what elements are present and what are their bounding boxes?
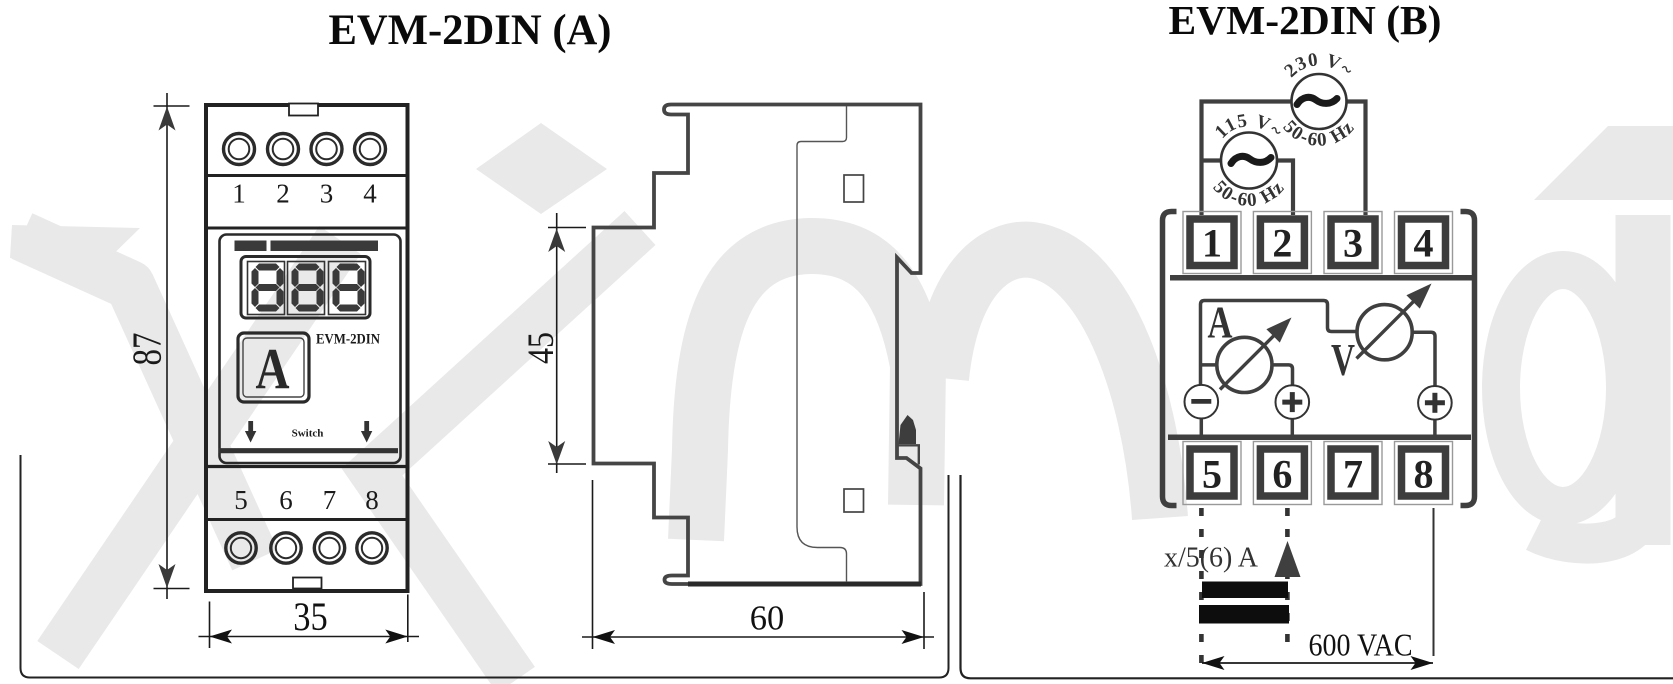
svg-text:600 VAC: 600 VAC: [1309, 627, 1413, 663]
svg-text:45: 45: [521, 332, 562, 364]
svg-text:6: 6: [1272, 452, 1292, 497]
svg-text:8: 8: [1414, 452, 1434, 497]
svg-text:EVM-2DIN (B): EVM-2DIN (B): [1169, 0, 1442, 43]
svg-text:7: 7: [323, 485, 337, 515]
svg-text:x/5(6) A: x/5(6) A: [1164, 543, 1259, 574]
svg-text:60: 60: [750, 599, 785, 638]
svg-text:87: 87: [124, 333, 170, 366]
svg-text:3: 3: [320, 179, 334, 209]
svg-text:4: 4: [1414, 221, 1434, 266]
svg-text:2: 2: [276, 179, 290, 209]
svg-text:7: 7: [1343, 452, 1363, 497]
svg-text:5: 5: [1202, 452, 1222, 497]
svg-text:4: 4: [363, 179, 377, 209]
svg-text:1: 1: [1202, 221, 1222, 266]
svg-text:Switch: Switch: [292, 428, 324, 440]
svg-text:2: 2: [1272, 221, 1292, 266]
svg-text:EVM-2DIN: EVM-2DIN: [316, 332, 380, 348]
svg-text:EVM-2DIN (A): EVM-2DIN (A): [329, 7, 612, 54]
svg-text:6: 6: [279, 485, 293, 515]
svg-text:35: 35: [293, 594, 328, 639]
svg-text:8: 8: [365, 485, 379, 515]
svg-text:3: 3: [1343, 221, 1363, 266]
svg-text:A: A: [256, 336, 290, 401]
svg-text:5: 5: [234, 485, 248, 515]
svg-text:1: 1: [232, 179, 246, 209]
svg-text:V: V: [1331, 335, 1355, 385]
svg-text:A: A: [1208, 297, 1233, 348]
